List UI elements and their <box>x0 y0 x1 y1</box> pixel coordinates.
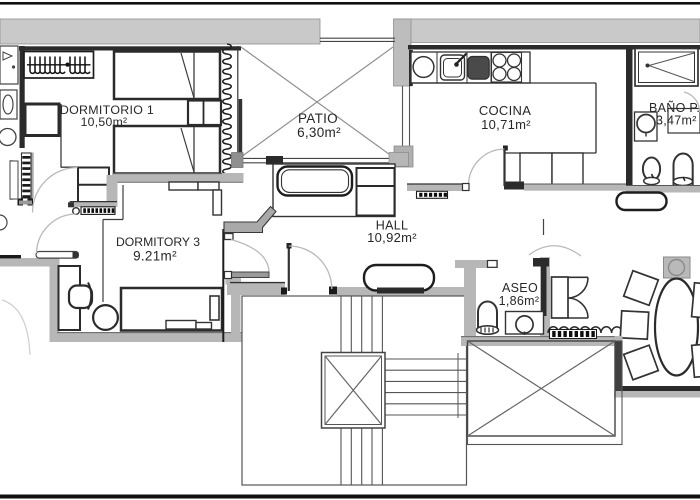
svg-text:PATIO: PATIO <box>298 111 338 126</box>
svg-text:9.21m²: 9.21m² <box>133 249 177 264</box>
svg-text:10,71m²: 10,71m² <box>481 117 531 132</box>
svg-text:6,30m²: 6,30m² <box>297 125 341 140</box>
svg-text:DORMITORY 3: DORMITORY 3 <box>116 235 200 249</box>
svg-text:3,47m²: 3,47m² <box>656 114 697 128</box>
svg-text:COCINA: COCINA <box>479 103 531 118</box>
svg-text:ASEO: ASEO <box>502 281 538 295</box>
svg-text:10,92m²: 10,92m² <box>367 230 417 245</box>
svg-text:10,50m²: 10,50m² <box>81 115 128 129</box>
svg-text:1,86m²: 1,86m² <box>499 294 540 308</box>
